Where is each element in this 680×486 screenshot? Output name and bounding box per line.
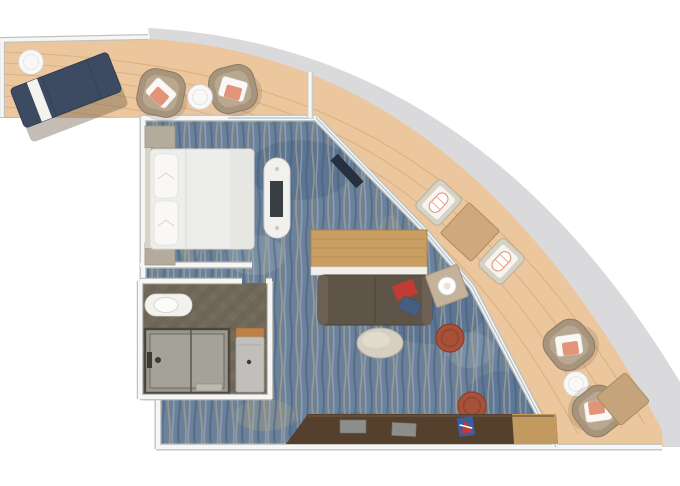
credenza-wood-end: [512, 414, 558, 444]
floor-plan: [0, 0, 680, 486]
shower-tray: [150, 334, 224, 388]
nightstand-top: [145, 126, 175, 148]
bed-pillow: [154, 201, 178, 245]
toilet-shelf: [236, 328, 264, 337]
flush-button: [247, 360, 251, 364]
rust-lounge-chair: [436, 324, 464, 352]
sofa-armrest-left: [318, 275, 328, 325]
shower-bench: [196, 384, 222, 391]
coffee-table-highlight: [362, 332, 390, 348]
console-knob: [275, 226, 279, 230]
bathroom: [140, 281, 272, 399]
floor-plan-canvas: [0, 0, 680, 486]
tray: [392, 422, 417, 436]
side-table-round: [19, 50, 44, 75]
art-piece: [457, 416, 475, 437]
side-table-round: [188, 85, 213, 110]
bed-foot-shading: [230, 150, 253, 248]
tv-screen: [270, 181, 283, 217]
tray: [340, 420, 366, 433]
table-ledge: [311, 267, 427, 275]
wood-table: [311, 230, 427, 268]
bed-pillow: [154, 154, 178, 198]
sink-basin: [154, 298, 178, 313]
console-knob: [275, 167, 279, 171]
shower-head: [155, 357, 161, 363]
shower-fixture: [147, 352, 152, 368]
